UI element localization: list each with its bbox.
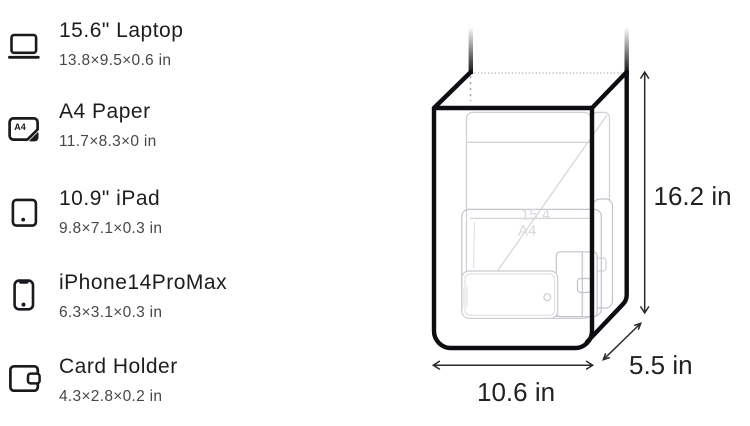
svg-text:5.5 in: 5.5 in xyxy=(629,350,693,380)
svg-text:A4: A4 xyxy=(518,223,536,240)
svg-text:15.4: 15.4 xyxy=(521,207,550,224)
svg-text:10.6 in: 10.6 in xyxy=(477,377,555,407)
svg-text:16.2 in: 16.2 in xyxy=(654,181,732,211)
